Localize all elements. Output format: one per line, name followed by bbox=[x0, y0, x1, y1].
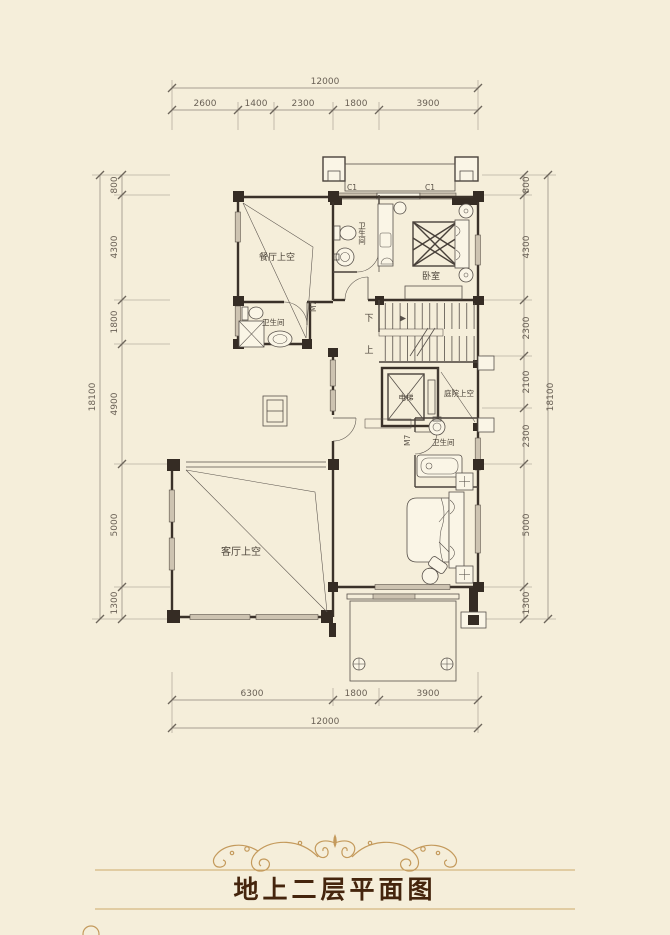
floor-plan-page: 12000 2600 1400 2300 1800 3900 6300 1800… bbox=[0, 0, 670, 935]
page-title: 地上二层平面图 bbox=[233, 875, 436, 904]
dim-left-seg-5: 5000 bbox=[110, 513, 120, 536]
decor-corner-circle bbox=[83, 926, 99, 935]
elevator-label: 电梯 bbox=[399, 392, 414, 402]
courtyard-void-label: 庭院上空 bbox=[444, 388, 474, 398]
dim-top-total: 12000 bbox=[311, 77, 340, 87]
title-block: 地上二层平面图 bbox=[83, 834, 575, 935]
bottom-balcony bbox=[329, 588, 486, 681]
dim-top-seg-1: 2600 bbox=[194, 99, 217, 109]
dim-right-seg-4: 2100 bbox=[522, 370, 532, 393]
dim-bottom-seg-2: 1800 bbox=[345, 689, 368, 699]
door-mark-m7-right: M7 bbox=[403, 435, 412, 446]
dim-right-seg-1: 800 bbox=[522, 176, 532, 193]
stairs-up-label: 上 bbox=[364, 345, 373, 356]
bathroom-left: 卫生间 bbox=[239, 307, 292, 347]
dim-left-total: 18100 bbox=[88, 382, 98, 411]
dim-right-seg-5: 2300 bbox=[522, 424, 532, 447]
bedroom-bottom bbox=[407, 473, 473, 588]
door-mark-m7-left: M7 bbox=[309, 301, 318, 312]
dim-left-seg-2: 4300 bbox=[110, 235, 120, 258]
courtyard-void: 庭院上空 bbox=[438, 356, 494, 432]
dim-left-seg-6: 1300 bbox=[110, 591, 120, 614]
dimension-annotations: 12000 2600 1400 2300 1800 3900 6300 1800… bbox=[88, 77, 556, 733]
floor-plan-drawing: 12000 2600 1400 2300 1800 3900 6300 1800… bbox=[0, 0, 670, 935]
dim-right-seg-7: 1300 bbox=[522, 591, 532, 614]
dim-top-seg-4: 1800 bbox=[345, 99, 368, 109]
window-mark-c1-left: C1 bbox=[347, 183, 357, 192]
living-void-label: 客厅上空 bbox=[221, 545, 261, 558]
flourish-center-drop bbox=[333, 834, 337, 848]
dim-top-seg-2: 1400 bbox=[245, 99, 268, 109]
bathroom-right-label: 卫生间 bbox=[432, 437, 455, 447]
staircase: 下 上 bbox=[364, 300, 478, 362]
dim-left-seg-4: 4900 bbox=[110, 392, 120, 415]
dim-left-seg-3: 1800 bbox=[110, 310, 120, 333]
window-mark-c1-right: C1 bbox=[425, 183, 435, 192]
dim-left-seg-1: 800 bbox=[110, 176, 120, 193]
dim-right-seg-2: 4300 bbox=[522, 235, 532, 258]
bathroom-left-label: 卫生间 bbox=[262, 317, 285, 327]
stairs-down-label: 下 bbox=[364, 314, 373, 324]
dim-right-seg-6: 5000 bbox=[522, 513, 532, 536]
dim-bottom-total: 12000 bbox=[311, 717, 340, 727]
bathroom-top: 卫生间 bbox=[334, 222, 367, 266]
bathroom-top-label: 卫生间 bbox=[357, 222, 366, 246]
bedroom-top: 卧室 bbox=[378, 202, 473, 299]
living-void-room: 客厅上空 bbox=[186, 470, 327, 612]
dim-right-seg-3: 2300 bbox=[522, 316, 532, 339]
hall-roof-window bbox=[263, 396, 411, 428]
dim-top-seg-5: 3900 bbox=[417, 99, 440, 109]
bedroom-label: 卧室 bbox=[422, 270, 440, 282]
dim-bottom-seg-3: 3900 bbox=[417, 689, 440, 699]
dim-top-seg-3: 2300 bbox=[292, 99, 315, 109]
dim-right-total: 18100 bbox=[546, 382, 556, 411]
dining-void-label: 餐厅上空 bbox=[259, 251, 295, 263]
dim-bottom-seg-1: 6300 bbox=[241, 689, 264, 699]
